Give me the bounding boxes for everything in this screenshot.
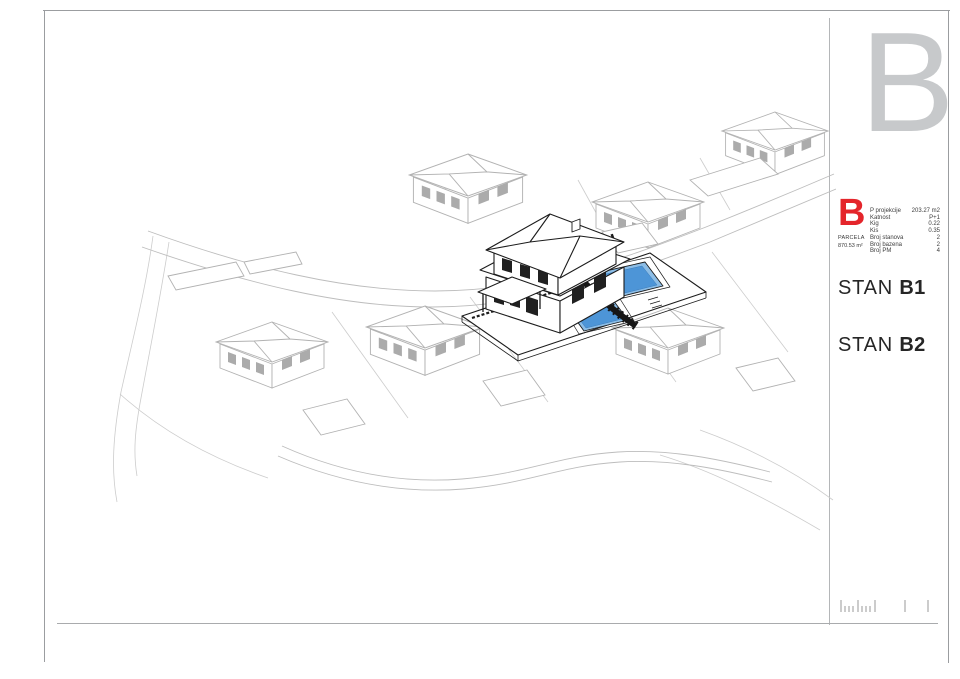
row-label: Kis: [870, 228, 878, 235]
row-label: Broj bazena: [870, 242, 902, 249]
unit-prefix: STAN: [838, 277, 899, 299]
parcel-label: PARCELA: [838, 235, 865, 241]
row-label: Katnost: [870, 215, 890, 222]
row-value: 203.27 m2: [912, 208, 940, 215]
unit-label-b2: STAN B2: [838, 334, 925, 357]
row-label: Broj stanova: [870, 235, 903, 242]
unit-label-b1: STAN B1: [838, 277, 925, 300]
parcel-id-column: B PARCELA 870.53 m²: [838, 198, 865, 255]
table-row: Kis 0.35: [870, 228, 940, 235]
row-value: 2: [937, 242, 940, 249]
unit-prefix: STAN: [838, 334, 899, 356]
parcel-letter: B: [838, 198, 865, 229]
row-value: 0.22: [928, 221, 940, 228]
site-plan-drawing: .w{fill:#ababab;stroke:none;}: [0, 0, 836, 679]
row-label: Kig: [870, 221, 879, 228]
unit-name: B1: [899, 277, 925, 299]
parcel-data-table: P projekcije 203.27 m2 Katnost P+1 Kig 0…: [870, 198, 940, 255]
table-row: Katnost P+1: [870, 215, 940, 222]
row-label: P projekcije: [870, 208, 901, 215]
row-value: 0.35: [928, 228, 940, 235]
table-row: Broj PM 4: [870, 248, 940, 255]
unit-name: B2: [899, 334, 925, 356]
row-value: 4: [937, 248, 940, 255]
drawing-sheet: { "sheet": { "corner_letter": "B" }, "in…: [0, 0, 960, 679]
table-row: Kig 0.22: [870, 221, 940, 228]
row-value: P+1: [929, 215, 940, 222]
row-label: Broj PM: [870, 248, 891, 255]
parcel-info-block: B PARCELA 870.53 m² P projekcije 203.27 …: [838, 198, 940, 255]
table-row: P projekcije 203.27 m2: [870, 208, 940, 215]
table-row: Broj stanova 2: [870, 235, 940, 242]
row-value: 2: [937, 235, 940, 242]
sheet-index-letter: B: [860, 12, 950, 154]
parcel-area: 870.53 m²: [838, 243, 865, 249]
table-row: Broj bazena 2: [870, 242, 940, 249]
scale-bar: [834, 594, 946, 618]
